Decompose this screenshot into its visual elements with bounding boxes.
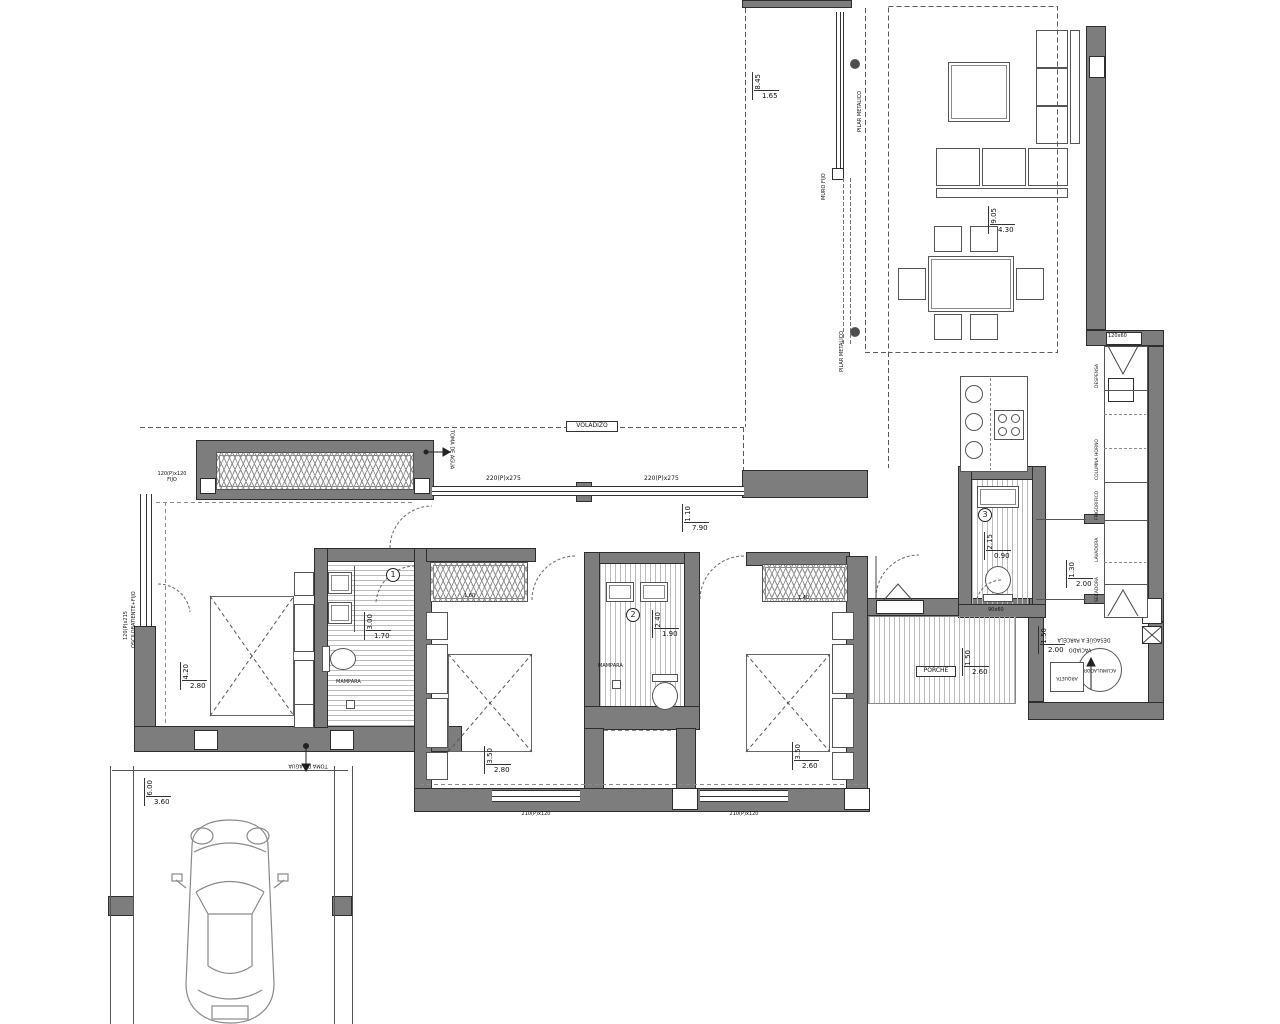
wall <box>584 552 600 722</box>
cabinet-label-1: DESPENSA <box>1096 350 1101 388</box>
cabinet-label-2: COLUMNA HORNO <box>1096 418 1101 480</box>
dim-value: 4.30 <box>990 224 1015 234</box>
wall <box>134 726 462 752</box>
hob-burner <box>998 414 1007 423</box>
dim-value: 8.45 <box>754 72 762 90</box>
bedroom2-window-label: 210(P)x120 <box>504 812 568 818</box>
wall <box>414 788 870 812</box>
shaft-box-crossed <box>1142 626 1162 644</box>
chair <box>1016 268 1044 300</box>
cabinet-label-3: FRIGORIFICO <box>1096 484 1101 520</box>
nightstand <box>294 704 314 728</box>
chair <box>934 226 962 252</box>
kitchen-sink-bowl <box>965 385 983 403</box>
bath1-toilet-tank <box>322 646 330 672</box>
coffee-table <box>948 62 1010 122</box>
dim-value: 7.90 <box>684 522 709 532</box>
bedroom3-window-label: 210(P)x120 <box>712 812 776 818</box>
wall <box>314 548 328 728</box>
dim-value: 1.30 <box>1068 560 1076 578</box>
dim-bath1: 3.00 1.70 <box>364 612 391 640</box>
mampara-label-bath2: MAMPARA <box>598 664 623 670</box>
sofa-seat <box>936 148 980 186</box>
dining-table <box>928 256 1014 312</box>
pillar-size-label-top: 120x60 <box>1108 334 1127 340</box>
dim-value: 6.00 <box>146 778 154 796</box>
sofa-seat <box>1036 68 1068 106</box>
sofa-seat <box>1036 106 1068 144</box>
wall <box>742 0 852 8</box>
wall <box>684 552 700 722</box>
terrace-sliding-door <box>836 12 844 172</box>
chair <box>898 268 926 300</box>
sliding-door-rail <box>1036 519 1086 520</box>
garage-edge-line <box>112 770 348 771</box>
wall <box>1032 466 1046 618</box>
nightstand <box>832 612 854 640</box>
bed-1 <box>210 596 294 716</box>
wall <box>584 706 700 730</box>
wall <box>1148 346 1164 622</box>
pillar <box>200 478 216 494</box>
bath1-sink <box>328 572 352 594</box>
dim-value: 3.50 <box>794 742 802 760</box>
hall-window-label-1: 220(P)x275 <box>486 476 521 483</box>
sofa-backrest <box>1070 30 1080 144</box>
window-arc-bedroom1 <box>158 584 190 612</box>
bedroom3-window <box>700 790 788 802</box>
nightstand <box>426 752 448 780</box>
pillar-size-label-bath3: 90x60 <box>988 608 1004 614</box>
steel-pillar-label-bottom: PILAR METALICO <box>840 288 846 372</box>
dim-value: 1.50 <box>964 648 972 666</box>
bath2-sink <box>606 582 634 602</box>
pillar <box>672 788 698 810</box>
floor-plan: ACUMULADOR ARQUETA DESAGÜE A PARCELA VAC… <box>0 0 1280 1024</box>
dim-value: 2.60 <box>964 666 989 676</box>
pillar <box>414 478 430 494</box>
dim-value: 0.90 <box>986 550 1011 560</box>
bedroom1-side-window-type: OSCILOBATIENTE+FIJO <box>132 520 138 648</box>
bath3-toilet <box>985 566 1011 594</box>
wardrobe3-size-label: 1.40 <box>798 596 809 602</box>
bed-3 <box>746 654 830 752</box>
nightstand <box>294 572 314 596</box>
wall <box>584 728 604 790</box>
pillow <box>426 698 448 748</box>
entry-door-opening <box>876 600 924 614</box>
dim-garage: 6.00 3.60 <box>144 778 171 806</box>
dim-bedroom1: 4.20 2.80 <box>180 662 207 690</box>
bedroom1-side-window-size: 120(P)x215 <box>124 528 130 640</box>
sliding-door-rail <box>1036 599 1086 600</box>
accumulator-label: ACUMULADOR <box>1083 666 1117 671</box>
hob-burner <box>1011 414 1020 423</box>
wardrobe-bedroom2 <box>430 562 528 602</box>
porch-floor <box>868 616 1016 704</box>
dim-value: 2.80 <box>486 764 511 774</box>
wall <box>426 548 536 562</box>
cabinet-divider <box>1104 482 1148 483</box>
cabinet-label-4: LAVADORA <box>1096 524 1101 562</box>
pillar <box>194 730 218 750</box>
bedroom1-fixed-window-label: 120(P)x120 FIJO <box>150 472 194 483</box>
dim-value: 9.05 <box>990 206 998 224</box>
bath1-shower-drain <box>346 700 355 709</box>
water-intake-label-garage: TOMA DE AGUA <box>278 762 338 768</box>
bath2-shower-drain <box>612 680 621 689</box>
kitchen-sink-bowl <box>965 413 983 431</box>
bath1-toilet <box>330 648 356 670</box>
dim-value: 1.10 <box>684 504 692 522</box>
dim-value: 2.15 <box>986 532 994 550</box>
pillow <box>832 698 854 748</box>
dim-bedroom2: 3.50 2.80 <box>484 746 511 774</box>
dim-value: 4.20 <box>182 662 190 680</box>
bath1-counter-edge <box>354 566 355 632</box>
sofa-seat <box>982 148 1026 186</box>
bath1-number: 1 <box>386 568 400 582</box>
dim-hall: 1.10 7.90 <box>682 504 709 532</box>
hall-window-label-2: 220(P)x275 <box>644 476 679 483</box>
wall-niche <box>1089 56 1105 78</box>
door-arc-bedroom2 <box>532 556 576 600</box>
sofa-seat <box>1028 148 1068 186</box>
drain-note: DESAGÜE A PARCELA <box>1046 636 1122 642</box>
dim-value: 2.00 <box>1068 578 1093 588</box>
door-arc-entry <box>876 555 919 598</box>
chair <box>934 314 962 340</box>
dim-value: 3.50 <box>486 746 494 764</box>
pillow <box>294 604 314 652</box>
pillow <box>426 644 448 694</box>
dim-value: 1.65 <box>754 90 779 100</box>
bedroom1-side-window <box>140 494 152 626</box>
voladizo-label: VOLADIZO <box>566 421 618 432</box>
nightstand <box>832 752 854 780</box>
dim-terrace-side: 8.45 1.65 <box>752 72 779 100</box>
garage-boundary <box>334 766 335 1024</box>
sofa-seat <box>1036 30 1068 68</box>
porche-label: PORCHE <box>916 666 956 677</box>
pillar <box>844 788 870 810</box>
wardrobe2-size-label: 1.60 <box>464 594 475 600</box>
pillow <box>294 660 314 708</box>
wall <box>584 552 698 564</box>
drain-note-2: VACIADO <box>1058 646 1102 652</box>
dim-bath3: 2.15 0.90 <box>984 532 1011 560</box>
bath3-number: 3 <box>978 508 992 522</box>
wall <box>742 470 868 498</box>
bedroom2-window <box>492 790 580 802</box>
dim-value: 3.00 <box>366 612 374 630</box>
door-arc-bedroom3 <box>700 556 744 600</box>
door-arc-bedroom1 <box>390 506 432 548</box>
cabinet-divider <box>1104 584 1148 585</box>
water-intake-label-hall: TOMA DE AGUA <box>448 430 454 480</box>
bath3-sink <box>977 486 1019 508</box>
dim-value: 3.60 <box>146 796 171 806</box>
fixed-wall-label: MURO FIJO <box>822 136 828 200</box>
bed-2 <box>448 654 532 752</box>
steel-pillar-bottom <box>851 328 860 337</box>
garage-boundary <box>110 766 111 1024</box>
bath2-toilet <box>652 682 678 710</box>
sofa-backrest <box>936 188 1068 198</box>
hob-burner <box>998 427 1007 436</box>
wall <box>676 728 696 790</box>
window-type: FIJO <box>167 477 177 483</box>
dim-value: 2.60 <box>794 760 819 770</box>
bath3-toilet-tank <box>983 594 1013 602</box>
bath1-sink <box>328 602 352 624</box>
hob-burner <box>1011 427 1020 436</box>
slide-door-connector <box>832 168 844 180</box>
car-top-view <box>172 820 288 1023</box>
bath2-number: 2 <box>626 608 640 622</box>
mampara-label-bath1: MAMPARA <box>336 680 361 686</box>
pillow <box>832 644 854 694</box>
dim-bedroom3: 3.50 2.60 <box>792 742 819 770</box>
bath2-sink <box>640 582 668 602</box>
hall-glass-wall <box>432 486 744 496</box>
wardrobe-bedroom1 <box>216 452 414 490</box>
dim-value: 2.40 <box>654 610 662 628</box>
chair <box>970 314 998 340</box>
dim-bath2: 2.40 1.90 <box>652 610 679 638</box>
wall <box>1028 702 1164 720</box>
nightstand <box>426 612 448 640</box>
dim-porch: 1.50 2.60 <box>962 648 989 676</box>
garage-pillar <box>108 896 134 916</box>
cabinet-divider <box>1104 520 1148 521</box>
bath2-toilet-tank <box>652 674 678 682</box>
garage-boundary <box>352 766 353 1024</box>
cabinet-divider <box>1104 390 1148 391</box>
kitchen-sink-bowl <box>965 441 983 459</box>
dim-terrace-main: 9.05 4.30 <box>988 206 1015 234</box>
dim-value: 1.70 <box>366 630 391 640</box>
garage-pillar <box>332 896 352 916</box>
cabinet-label-5: SECADORA <box>1096 564 1101 602</box>
steel-pillar-label-top: PILAR METALICO <box>858 48 864 132</box>
dim-value: 2.80 <box>182 680 207 690</box>
wall <box>958 466 972 618</box>
pillar <box>330 730 354 750</box>
garage-boundary <box>133 766 134 1024</box>
dim-value: 1.90 <box>654 628 679 638</box>
dim-hall-right: 1.30 2.00 <box>1066 560 1093 588</box>
drain-box-label: ARQUETA <box>1052 674 1082 679</box>
